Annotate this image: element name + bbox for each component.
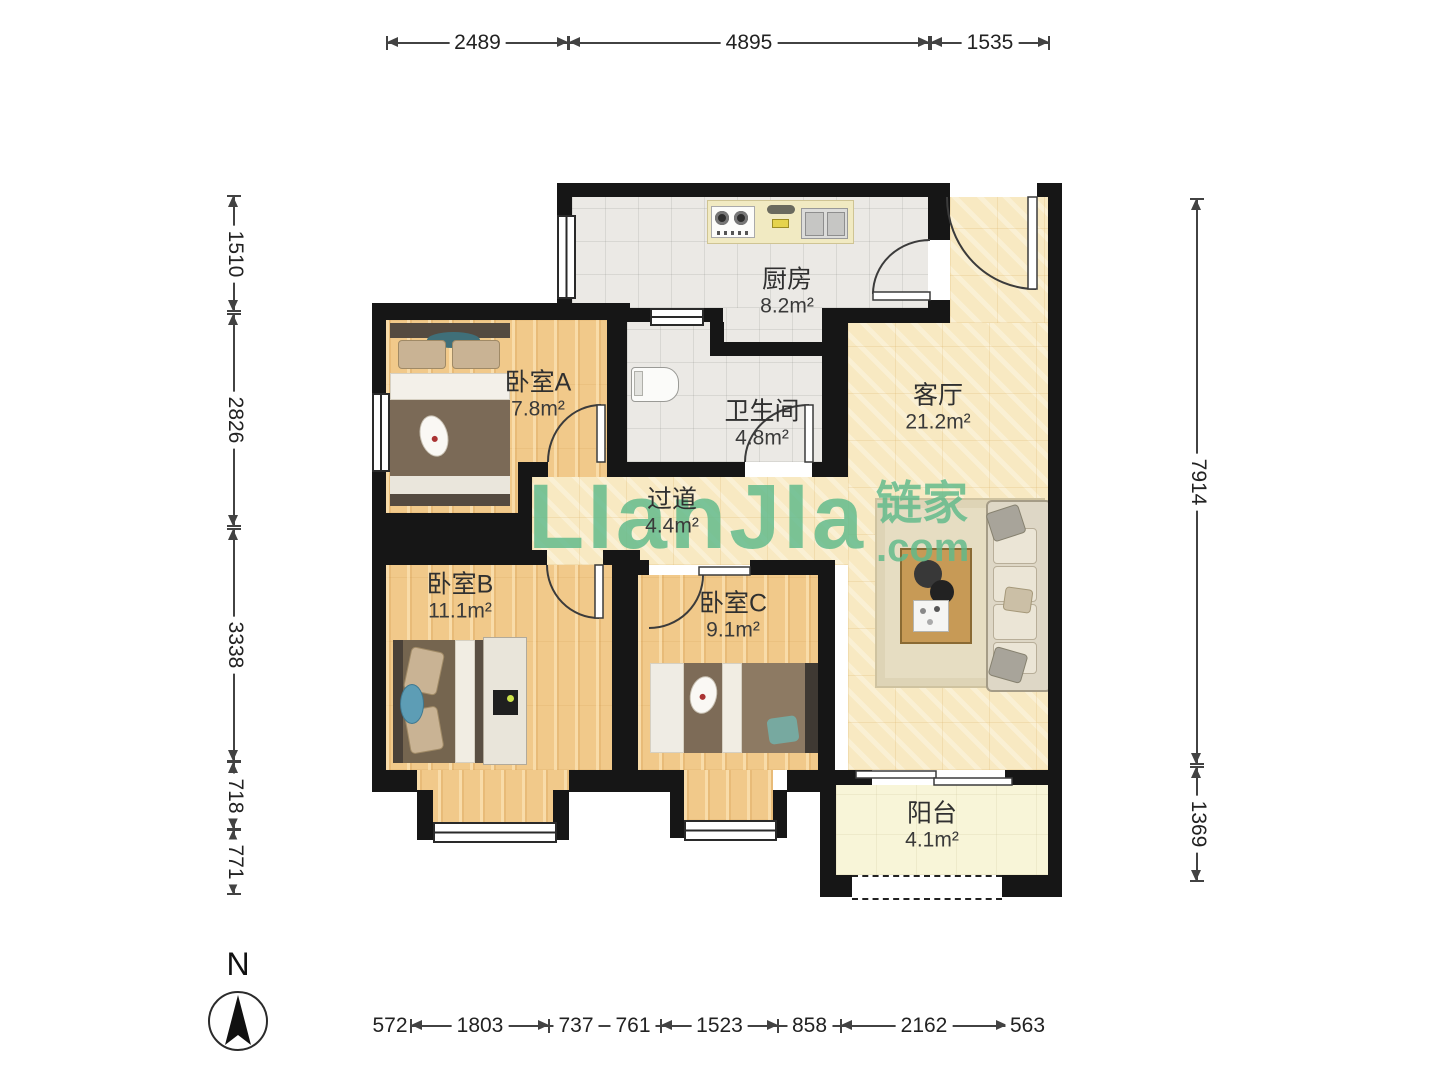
bedroom-b-bay-window [433,822,557,843]
bathroom-pass-window [650,308,704,326]
wall-segment [710,342,835,356]
dim-left-1: 1510 [233,197,235,310]
wall-segment [822,323,848,477]
bed-pillow-teal [766,715,799,745]
room-label-bedroom-b: 卧室B11.1m² [427,571,494,624]
living-floor-top [950,197,1048,323]
bedroom-c-bay-window [684,820,777,841]
room-label-balcony: 阳台4.1m² [905,800,959,853]
bed-footboard [475,640,483,763]
room-label-bedroom-a: 卧室A7.8m² [505,369,572,422]
dim-bottom-1: 572 [368,1025,412,1027]
toilet-tank [634,371,643,396]
wall-segment [417,790,433,840]
toilet-icon [631,367,679,402]
dim-bottom-5: 1523 [662,1025,777,1027]
dim-top-3: 1535 [932,42,1048,44]
bed-sheet [390,373,510,400]
bedside-stool [400,684,424,724]
wall-segment [612,565,638,770]
room-label-hallway: 过道4.4m² [645,486,699,539]
sink-basin [805,212,824,236]
dim-bottom-7: 2162 [842,1025,1006,1027]
wall-segment [928,197,950,240]
balcony-window [852,875,1002,900]
decor-pillow [686,674,720,717]
dim-bottom-3: 737 [548,1025,604,1027]
bed-c [650,663,827,753]
decor-pillow [415,412,452,460]
wall-segment [557,197,572,215]
bedroom-a-window [372,393,390,472]
wall-segment [638,560,649,575]
dim-bottom-8: 563 [1006,1025,1049,1027]
cutting-board [772,219,789,228]
coffee-table [900,548,972,644]
dim-top-2: 4895 [570,42,928,44]
kitchen-window [557,215,576,299]
wall-segment [820,875,852,897]
kitchen-counter [707,200,854,244]
room-label-kitchen: 厨房8.2m² [760,266,814,319]
wall-segment [569,770,684,792]
dim-right-1: 7914 [1196,200,1198,763]
wall-segment [818,560,835,785]
wall-segment [822,308,950,323]
dim-left-3: 3338 [233,530,235,760]
wall-segment [607,320,627,477]
bed-footboard [390,494,510,506]
floorplan-canvas: 厨房8.2m² 卧室A7.8m² 卫生间4.8m² 客厅21.2m² 过道4.4… [0,0,1440,1080]
wall-segment [603,550,640,565]
bedroom-c-door-leaf [699,567,750,575]
burner-icon [715,211,729,225]
dim-left-5: 771 [233,831,235,893]
double-sink-icon [801,208,848,239]
bed-foot-sheet [390,476,510,494]
tray [913,600,949,632]
dim-bottom-2: 1803 [412,1025,548,1027]
bed-pillow [452,340,500,369]
dim-bottom-6: 858 [777,1025,842,1027]
wall-segment [372,528,386,792]
wall-segment [1048,183,1062,895]
wall-segment [607,462,745,477]
wall-segment [812,462,848,477]
compass: N [207,990,269,1052]
wall-segment [607,308,650,322]
burner-icon [734,211,748,225]
wall-segment [518,477,532,513]
wall-segment [372,770,417,792]
room-label-bedroom-c: 卧室C9.1m² [699,590,767,643]
bed-foot-sheet [650,663,684,753]
sofa [986,500,1052,692]
dim-right-2: 1369 [1196,768,1198,880]
bed-blanket [684,663,722,753]
throw-pillow [1002,586,1033,614]
sink-basin [827,212,845,236]
small-appliance-icon [767,205,795,214]
north-arrow-icon [207,990,269,1052]
bedroom-b-bay [417,770,569,823]
wall-segment [670,790,684,838]
bedroom-c-bay [684,770,773,820]
wall-segment [1005,770,1048,785]
compass-n-label: N [226,946,249,983]
bed-a [390,323,510,506]
tv-icon [493,690,518,715]
room-label-living: 客厅21.2m² [905,382,970,435]
balcony-slider-panel [934,778,1012,785]
wall-segment [557,183,950,197]
dim-left-2: 2826 [233,315,235,525]
wall-segment [372,303,386,393]
wall-segment [787,770,835,792]
dim-left-4: 718 [233,763,235,828]
wall-segment [372,550,547,565]
bed-sheet [722,663,742,753]
tv-light [507,695,514,702]
stove-knobs [717,231,749,235]
wall-segment [372,303,630,320]
wardrobe-b [483,637,527,765]
stove-icon [711,206,755,238]
wall-segment [928,300,950,308]
room-label-bathroom: 卫生间4.8m² [724,398,799,451]
dim-top-1: 2489 [388,42,567,44]
wall-segment [1002,875,1062,897]
dim-bottom-4: 761 [604,1025,662,1027]
bed-blanket [390,400,510,476]
bed-pillow [398,340,446,369]
wall-segment [518,462,548,477]
bed-sheet [455,640,475,763]
